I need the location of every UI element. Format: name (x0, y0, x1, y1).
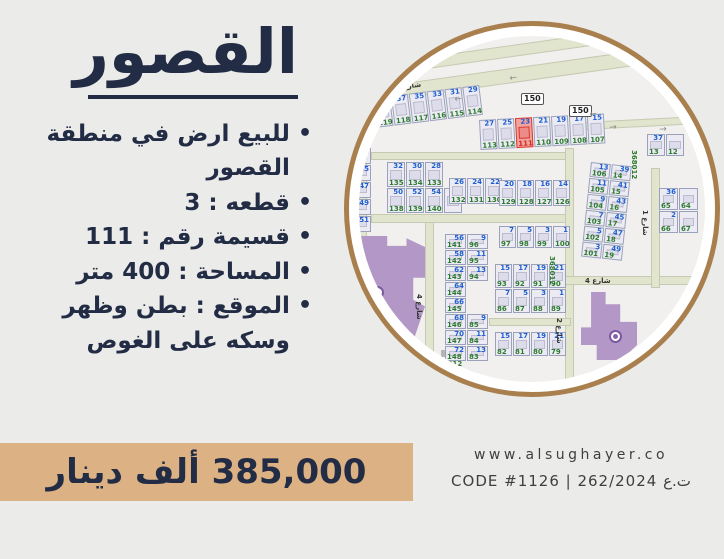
map-parcel: 43 (359, 148, 371, 164)
map-parcel: 189 (549, 289, 566, 313)
map-parcel-block: 7975983991100 (499, 226, 570, 248)
map-parcel: 797 (499, 226, 516, 248)
map-parcel: 66145 (445, 298, 466, 313)
map-parcel: 19109 (551, 115, 570, 146)
map-parcel: 17108 (569, 114, 588, 145)
plot-code-label: 368012 (548, 256, 556, 285)
map-parcel: 45 (359, 165, 371, 181)
price-text: 385,000 ألف دينار (47, 452, 367, 492)
map-parcel: 1781 (513, 332, 530, 356)
map-parcel-block: 20129181281612714126 (499, 180, 570, 206)
map-parcel: 266 (659, 211, 678, 233)
map-parcel-block: 4345474951 (359, 148, 371, 232)
map-parcel: 4115 (609, 180, 630, 197)
map-parcel: 67 (679, 211, 698, 233)
mosque-icon (371, 286, 384, 299)
map-parcel: 58142 (445, 250, 466, 265)
map-parcel-block: 27113251122311121110191091710815107 (479, 113, 605, 150)
map-parcel: 1394 (467, 266, 488, 281)
map-parcel: 27113 (479, 119, 498, 150)
map-parcel: 18128 (517, 180, 534, 206)
road-arrow-icon: ← (509, 74, 518, 84)
road-arrow-icon: → (609, 124, 617, 133)
listing-bullet: • قطعه : 3 (0, 186, 312, 221)
map-parcel: 49 (359, 199, 371, 215)
map-parcel: 39119 (373, 96, 394, 128)
map-parcel: 1100 (553, 226, 570, 248)
title-underline (88, 95, 298, 99)
map-parcel: 12 (666, 134, 684, 156)
map-parcel: 1195 (467, 250, 488, 265)
map-parcel: 1593 (495, 264, 512, 288)
map-parcel: 3914 (610, 164, 631, 181)
map-parcel: 54140 (425, 188, 443, 213)
listing-bullet: • الموقع : بطن وظهر وسكه على الغوص (0, 289, 312, 358)
map-parcel: 25112 (497, 118, 516, 149)
street-label: شارع 4 (415, 294, 423, 320)
bullet-icon: • (298, 289, 312, 322)
map-parcel: 996 (467, 234, 488, 249)
road-arrow-icon: ← (414, 63, 423, 73)
map-road (425, 222, 434, 382)
bullet-icon: • (298, 220, 312, 253)
map-parcel: 20129 (499, 180, 516, 206)
map-parcel: 64 (679, 188, 698, 210)
map-parcel: 72148 (445, 346, 466, 361)
map-road (371, 214, 571, 223)
listing-code: CODE #1126 | 262/2024 ت.ع (442, 472, 700, 490)
route-badge: 150 (521, 93, 544, 105)
map-parcel: 9104 (586, 194, 607, 211)
map-parcel: 32135 (387, 162, 405, 187)
mosque-icon (609, 330, 622, 343)
listing-bullet: • قسيمة رقم : 111 (0, 220, 312, 255)
map-parcel: 587 (513, 289, 530, 313)
map-parcel: 4718 (604, 228, 625, 245)
bullet-icon: • (298, 117, 312, 150)
map-parcel: 786 (495, 289, 512, 313)
map-parcel: 3713 (647, 134, 665, 156)
map-parcel: 33116 (427, 89, 448, 121)
map-parcel-block: 5614199658142119562143139464144661456814… (445, 234, 488, 361)
map-parcel-block: 1310639141110541159104431671034517510247… (581, 162, 632, 261)
map-parcel-highlighted: 23111 (515, 117, 534, 148)
map-building (581, 292, 637, 360)
map-parcel: 399 (535, 226, 552, 248)
map-parcel: 16127 (535, 180, 552, 206)
map-parcel-block: 36656426667 (659, 188, 698, 233)
road-arrow-icon: ← (589, 110, 598, 120)
road-arrow-icon: ← (454, 95, 463, 105)
map-parcel: 30134 (406, 162, 424, 187)
map-parcel: 4316 (607, 196, 628, 213)
map-parcel: 4517 (605, 212, 626, 229)
map-parcel: 13106 (589, 162, 610, 179)
map-parcel: 56141 (445, 234, 466, 249)
map-parcel: 1792 (513, 264, 530, 288)
map-parcel: 24131 (467, 178, 484, 204)
bullet-text: قسيمة رقم : 111 (0, 220, 290, 255)
bullet-text: قطعه : 3 (0, 186, 290, 221)
map-parcel: 3101 (581, 242, 602, 259)
street-label: شارع 1 (641, 210, 649, 236)
plot-code-label: 368012 (433, 360, 462, 368)
bullet-text: للبيع ارض في منطقة القصور (0, 117, 290, 186)
map-parcel: 11105 (588, 178, 609, 195)
map-circle-frame: 3911937118351173311631115291142711325112… (344, 21, 720, 397)
map-parcel: 26132 (449, 178, 466, 204)
map-parcel: 62143 (445, 266, 466, 281)
map-parcel: 1582 (495, 332, 512, 356)
flyer-page: القصور • للبيع ارض في منطقة القصور • قطع… (0, 0, 724, 559)
map-parcel: 68146 (445, 314, 466, 329)
road-arrow-icon: → (659, 126, 667, 135)
price-banner: 385,000 ألف دينار (0, 443, 413, 501)
map-parcel: 1383 (467, 346, 488, 361)
bullet-text: المساحة : 400 متر (0, 255, 290, 290)
bullet-text: الموقع : بطن وظهر وسكه على الغوص (0, 289, 290, 358)
listing-panel: القصور • للبيع ارض في منطقة القصور • قطع… (0, 12, 312, 358)
map-parcel: 50138 (387, 188, 405, 213)
map-building (359, 236, 425, 346)
map-parcel: 1184 (467, 330, 488, 345)
map-parcel: 29114 (462, 85, 483, 117)
map-parcel: 5102 (583, 226, 604, 243)
website-url: www.alsughayer.co (442, 447, 700, 463)
map-parcel: 388 (531, 289, 548, 313)
map-parcel-block: 371312 (647, 134, 684, 156)
map-parcel: 64144 (445, 282, 466, 297)
map-parcel: 4919 (602, 244, 623, 261)
map-parcel: 52139 (406, 188, 424, 213)
street-label: شارع 4 (585, 277, 611, 285)
map-parcel: 35117 (409, 92, 430, 124)
map-parcel: 7103 (584, 210, 605, 227)
bullet-icon: • (298, 186, 312, 219)
footer: www.alsughayer.co CODE #1126 | 262/2024 … (442, 447, 700, 490)
listing-details: • للبيع ارض في منطقة القصور • قطعه : 3 •… (0, 117, 312, 359)
map-parcel: 28133 (425, 162, 443, 187)
map-parcel-block: 261322413122130 (449, 178, 502, 204)
listing-bullet: • للبيع ارض في منطقة القصور (0, 117, 312, 186)
map-parcel: 21110 (533, 116, 552, 147)
map-parcel: 1980 (531, 332, 548, 356)
bullet-icon: • (298, 255, 312, 288)
map-parcel: 70147 (445, 330, 466, 345)
map-parcel: 598 (517, 226, 534, 248)
map-parcel: 14126 (553, 180, 570, 206)
map-parcel: 985 (467, 314, 488, 329)
map-parcel: 51 (359, 216, 371, 232)
plot-code-label: 368012 (630, 150, 638, 179)
map-parcel: 3665 (659, 188, 678, 210)
listing-bullet: • المساحة : 400 متر (0, 255, 312, 290)
map-road (371, 152, 571, 160)
parcel-map: 3911937118351173311631115291142711325112… (359, 36, 705, 382)
page-title: القصور (0, 12, 298, 93)
map-parcel: 47 (359, 182, 371, 198)
street-label: شارع 2 (555, 318, 563, 344)
map-parcel: 1991 (531, 264, 548, 288)
map-parcel: 37118 (391, 94, 412, 126)
